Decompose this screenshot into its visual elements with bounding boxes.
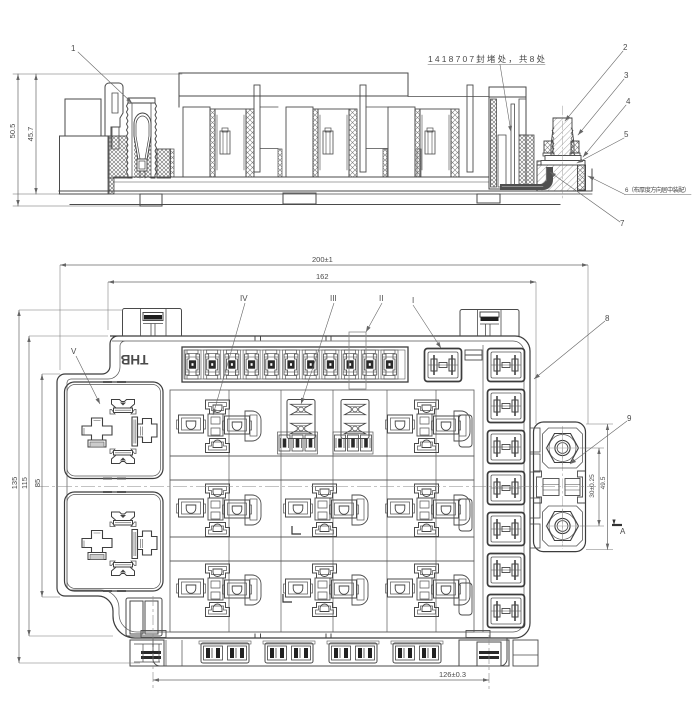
svg-text:45.7: 45.7 xyxy=(26,127,35,142)
svg-text:1418707封堵处，共8处: 1418707封堵处，共8处 xyxy=(428,54,545,64)
svg-text:162: 162 xyxy=(316,272,329,281)
svg-text:A: A xyxy=(620,527,626,536)
svg-text:3: 3 xyxy=(624,71,629,80)
svg-text:49.5: 49.5 xyxy=(600,476,607,489)
svg-text:2: 2 xyxy=(623,43,628,52)
svg-text:115: 115 xyxy=(20,477,29,489)
svg-text:1: 1 xyxy=(71,44,76,53)
svg-text:III: III xyxy=(330,294,337,303)
svg-text:135: 135 xyxy=(10,477,19,490)
svg-text:V: V xyxy=(71,347,77,356)
svg-text:200±1: 200±1 xyxy=(312,255,333,264)
svg-text:I: I xyxy=(412,296,414,305)
svg-text:II: II xyxy=(379,294,383,303)
svg-text:50.5: 50.5 xyxy=(8,124,17,139)
svg-text:126±0.3: 126±0.3 xyxy=(439,670,466,679)
svg-text:7: 7 xyxy=(620,219,625,228)
svg-text:9: 9 xyxy=(627,414,632,423)
svg-text:85: 85 xyxy=(33,479,42,487)
svg-text:5: 5 xyxy=(624,130,629,139)
svg-text:4: 4 xyxy=(626,97,631,106)
svg-text:6（布厚度方向居中装配）: 6（布厚度方向居中装配） xyxy=(625,186,690,194)
svg-text:8: 8 xyxy=(605,314,610,323)
svg-text:IV: IV xyxy=(240,294,248,303)
svg-text:30±0.25: 30±0.25 xyxy=(589,474,596,498)
svg-text:THB: THB xyxy=(120,352,148,367)
